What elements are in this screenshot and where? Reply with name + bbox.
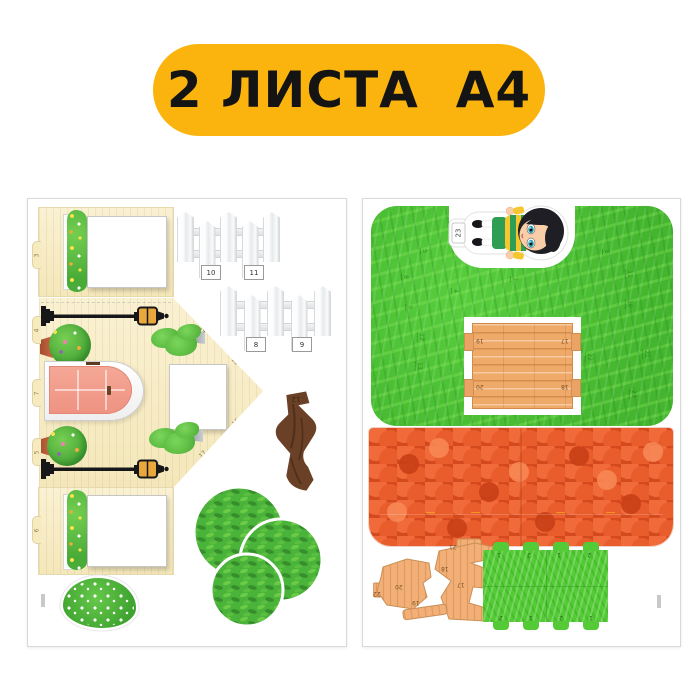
tabletop-tab [571, 379, 581, 397]
topiary-bush [49, 324, 91, 366]
tabletop-tab [464, 379, 474, 397]
window-panes [94, 502, 160, 560]
grass-fold-label: 22 [585, 352, 593, 362]
grass-strip-piece: 1 2 1 2 2 1 2 1 [483, 550, 608, 622]
strip-tab-number: 1 [589, 614, 593, 621]
flower-box [67, 490, 87, 570]
craft-sheet-right: 23 5 8 4 9 12 13 7 6 11 10 22 21 23 19 1… [362, 198, 681, 647]
strip-tab-number: 2 [527, 551, 531, 558]
strip-tab [523, 542, 539, 551]
strip-tab [493, 621, 509, 630]
tab-number: 18 [561, 383, 569, 390]
grass-fold-label: 9 [405, 304, 413, 310]
tab-number: 20 [476, 383, 484, 390]
tab-number: 5 [33, 450, 40, 454]
fence-picket [267, 286, 284, 336]
picnic-tabletop-panel: 19 17 20 18 [464, 317, 581, 415]
street-lamp [41, 456, 171, 482]
tab-number: 6 [33, 528, 40, 532]
grass-fold-label: 13 [415, 361, 423, 371]
strip-tab-number: 2 [499, 614, 503, 621]
front-door [44, 361, 144, 421]
fence-picket [263, 212, 280, 262]
product-image: 2 ЛИСТА А4 [0, 0, 700, 700]
roof-piece [369, 428, 673, 546]
tab-number: 3 [33, 253, 40, 257]
grass-fold-label: 4 [451, 288, 459, 294]
strip-tab [583, 542, 599, 551]
tab-number: 4 [33, 328, 40, 332]
fence-label: 9 [292, 337, 312, 352]
grass-fold-label: 12 [417, 332, 425, 342]
edge-tab: 6 [32, 516, 41, 544]
tab-number: 7 [33, 391, 40, 395]
sheet-count-badge: 2 ЛИСТА А4 [153, 44, 545, 136]
strip-tab-number: 1 [557, 551, 561, 558]
flowering-bush [63, 578, 136, 628]
fence-group: 8 9 [220, 286, 332, 351]
fence-picket [177, 212, 194, 262]
tabletop-tab [571, 333, 581, 351]
boy-tab-number: 23 [455, 229, 463, 238]
fence-picket [314, 286, 331, 336]
window [87, 216, 167, 288]
window [87, 495, 167, 567]
edge-tab: 7 [32, 379, 41, 407]
boy-figure: 23 [447, 203, 573, 263]
tree-canopy [189, 484, 323, 628]
craft-sheet-left: 14 15 16 17 3 4 7 5 6 10 1 [27, 198, 347, 647]
wood-part-label: 18 [441, 565, 449, 572]
fence-picket [220, 212, 237, 262]
fence-picket [220, 286, 237, 336]
tabletop-tab [464, 333, 474, 351]
flower-box [67, 210, 87, 292]
sheet-code-mark [657, 595, 661, 608]
window-panes [94, 223, 160, 281]
picnic-tabletop [472, 323, 573, 409]
grass-fold-label: 5 [420, 248, 428, 254]
grass-fold-label: 11 [625, 269, 633, 279]
wood-part-label: 21 [449, 543, 457, 550]
fence-label: 10 [201, 265, 221, 280]
grass-fold-label: 7 [510, 276, 518, 282]
roof-tile-pattern [369, 428, 673, 546]
fence-label: 8 [246, 337, 266, 352]
tab-number: 19 [476, 337, 484, 344]
wood-part-label: 22 [373, 590, 381, 597]
wall-piece-top [39, 208, 173, 296]
fence-label: 11 [244, 265, 264, 280]
tab-number: 17 [561, 337, 569, 344]
strip-tab-number: 2 [559, 614, 563, 621]
wood-part-label: 19 [412, 599, 420, 606]
strip-tab [493, 542, 509, 551]
grass-fold-label: 6 [602, 249, 610, 255]
fold-line [483, 586, 608, 587]
strip-tab-number: 2 [587, 551, 591, 558]
edge-tab: 5 [32, 438, 41, 466]
strip-tab [553, 542, 569, 551]
fence-group: 10 11 [177, 212, 281, 279]
grass-fold-label: 10 [625, 299, 633, 309]
strip-tab [523, 621, 539, 630]
wall-piece-bottom [39, 488, 173, 574]
grass-fold-label: 8 [401, 274, 409, 280]
edge-tab: 3 [32, 241, 41, 269]
wood-part-label: 20 [395, 583, 403, 590]
trunk-number: 12 [292, 395, 301, 403]
tree-trunk: 12 [269, 388, 323, 498]
edge-tab: 4 [32, 316, 41, 344]
strip-tab [553, 621, 569, 630]
gable-tab-number: 16 [231, 417, 241, 427]
grass-fold-label: 23 [629, 389, 637, 399]
door-hinge [86, 362, 100, 365]
strip-tab [583, 621, 599, 630]
door-handle [107, 386, 111, 395]
grass-fold-label: 21 [642, 349, 650, 359]
wood-part-label: 17 [457, 581, 465, 588]
strip-tab-number: 1 [497, 551, 501, 558]
badge-label: 2 ЛИСТА А4 [167, 61, 531, 119]
sheet-code-mark [41, 594, 45, 607]
window-panes [176, 371, 220, 423]
gable-tab-number: 15 [230, 356, 240, 366]
strip-tab-number: 1 [529, 614, 533, 621]
